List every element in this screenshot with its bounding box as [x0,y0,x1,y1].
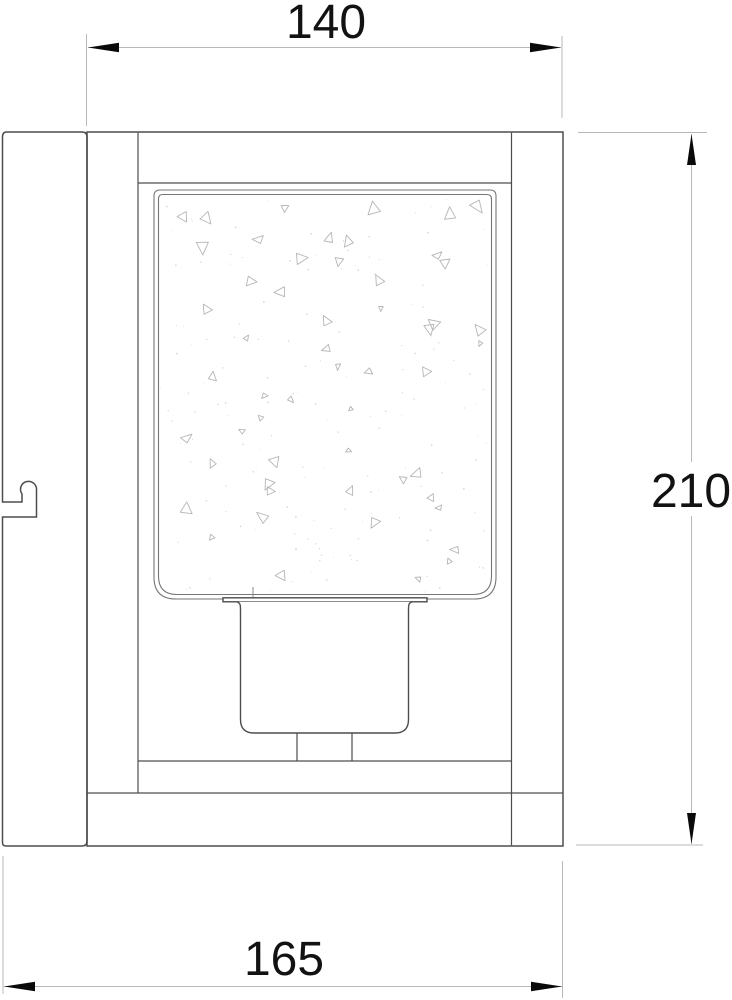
dimension-right-height: 210 [576,133,732,846]
arrowhead-down-icon [687,813,696,844]
dimension-label-top: 140 [286,0,366,49]
socket-stem [297,733,352,761]
sconce-fixture [3,132,564,846]
wall-plate [3,132,88,846]
dimension-top-width: 140 [87,0,563,126]
socket-flange [223,598,427,602]
arrowhead-up-icon [687,134,696,165]
dimension-bottom-depth: 165 [3,856,563,998]
socket-cup [237,602,412,733]
seeded-glass-texture [160,199,488,592]
glass-outer-outline [154,190,496,599]
arrowhead-right-icon [530,43,561,52]
glass-inner-outline [159,195,492,595]
arrowhead-left-icon [88,43,119,52]
dimension-label-bottom: 165 [244,933,324,986]
dimension-label-right: 210 [651,465,731,518]
sconce-dimension-drawing: 140 210 165 [0,0,732,1000]
arrowhead-right-icon [531,982,562,991]
technical-drawing-page: 140 210 165 [0,0,732,1000]
socket-assembly [223,598,427,761]
glass-shade [154,190,496,599]
arrowhead-left-icon [4,982,35,991]
